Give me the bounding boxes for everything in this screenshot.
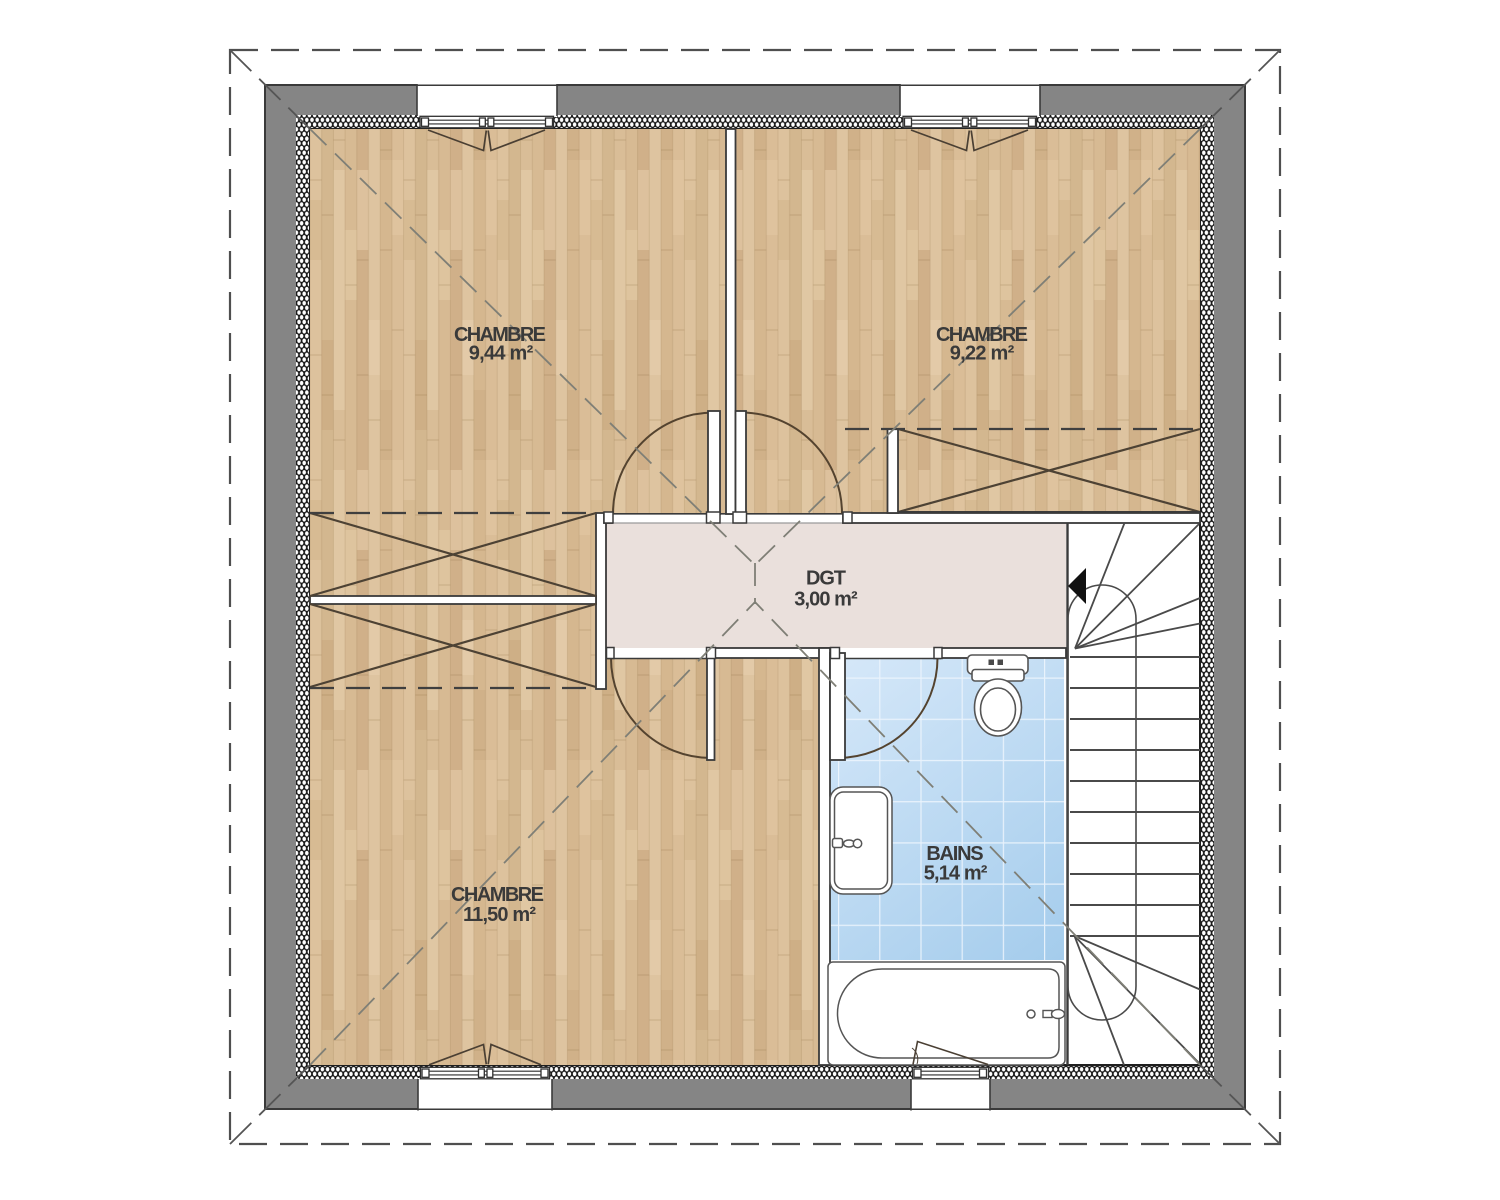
svg-text:5,14 m²: 5,14 m² xyxy=(924,863,988,885)
svg-text:DGT: DGT xyxy=(806,568,846,590)
svg-text:9,44 m²: 9,44 m² xyxy=(469,343,534,365)
svg-text:9,22 m²: 9,22 m² xyxy=(950,343,1015,365)
svg-text:CHAMBRE: CHAMBRE xyxy=(451,884,544,906)
svg-text:BAINS: BAINS xyxy=(926,843,983,865)
svg-text:11,50 m²: 11,50 m² xyxy=(463,904,536,926)
svg-text:3,00 m²: 3,00 m² xyxy=(794,588,858,610)
